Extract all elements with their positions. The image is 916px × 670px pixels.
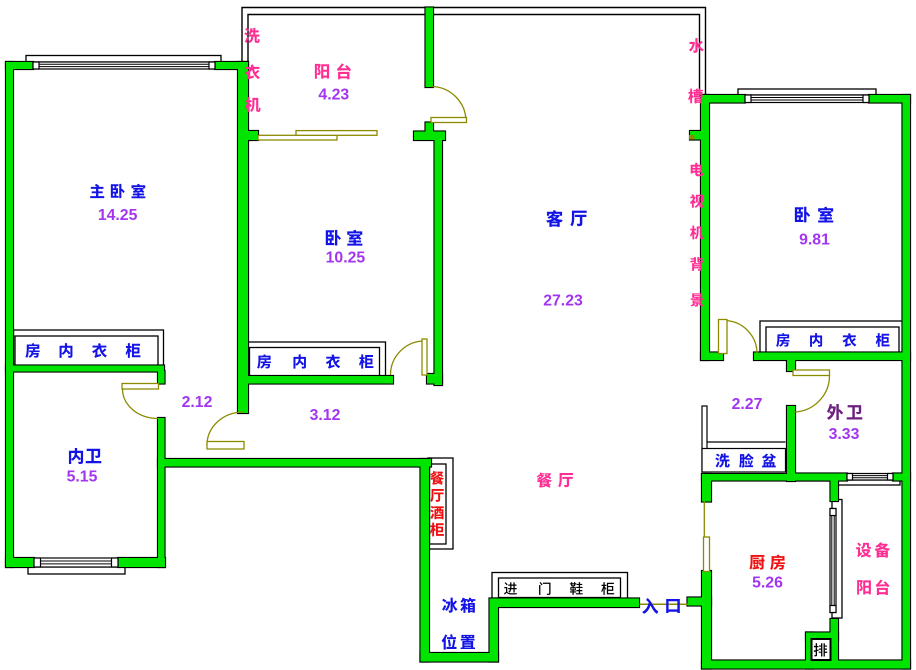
svg-text:9.81: 9.81 xyxy=(799,232,830,249)
svg-text:2.27: 2.27 xyxy=(732,396,763,413)
svg-text:14.25: 14.25 xyxy=(98,207,138,224)
svg-text:3.33: 3.33 xyxy=(829,426,860,443)
svg-text:4.23: 4.23 xyxy=(318,87,349,104)
svg-text:5.26: 5.26 xyxy=(752,575,783,592)
svg-text:27.23: 27.23 xyxy=(543,293,583,310)
svg-text:2.12: 2.12 xyxy=(182,394,213,411)
svg-text:3.12: 3.12 xyxy=(310,407,341,424)
svg-text:5.15: 5.15 xyxy=(67,469,98,486)
svg-text:10.25: 10.25 xyxy=(326,249,366,266)
